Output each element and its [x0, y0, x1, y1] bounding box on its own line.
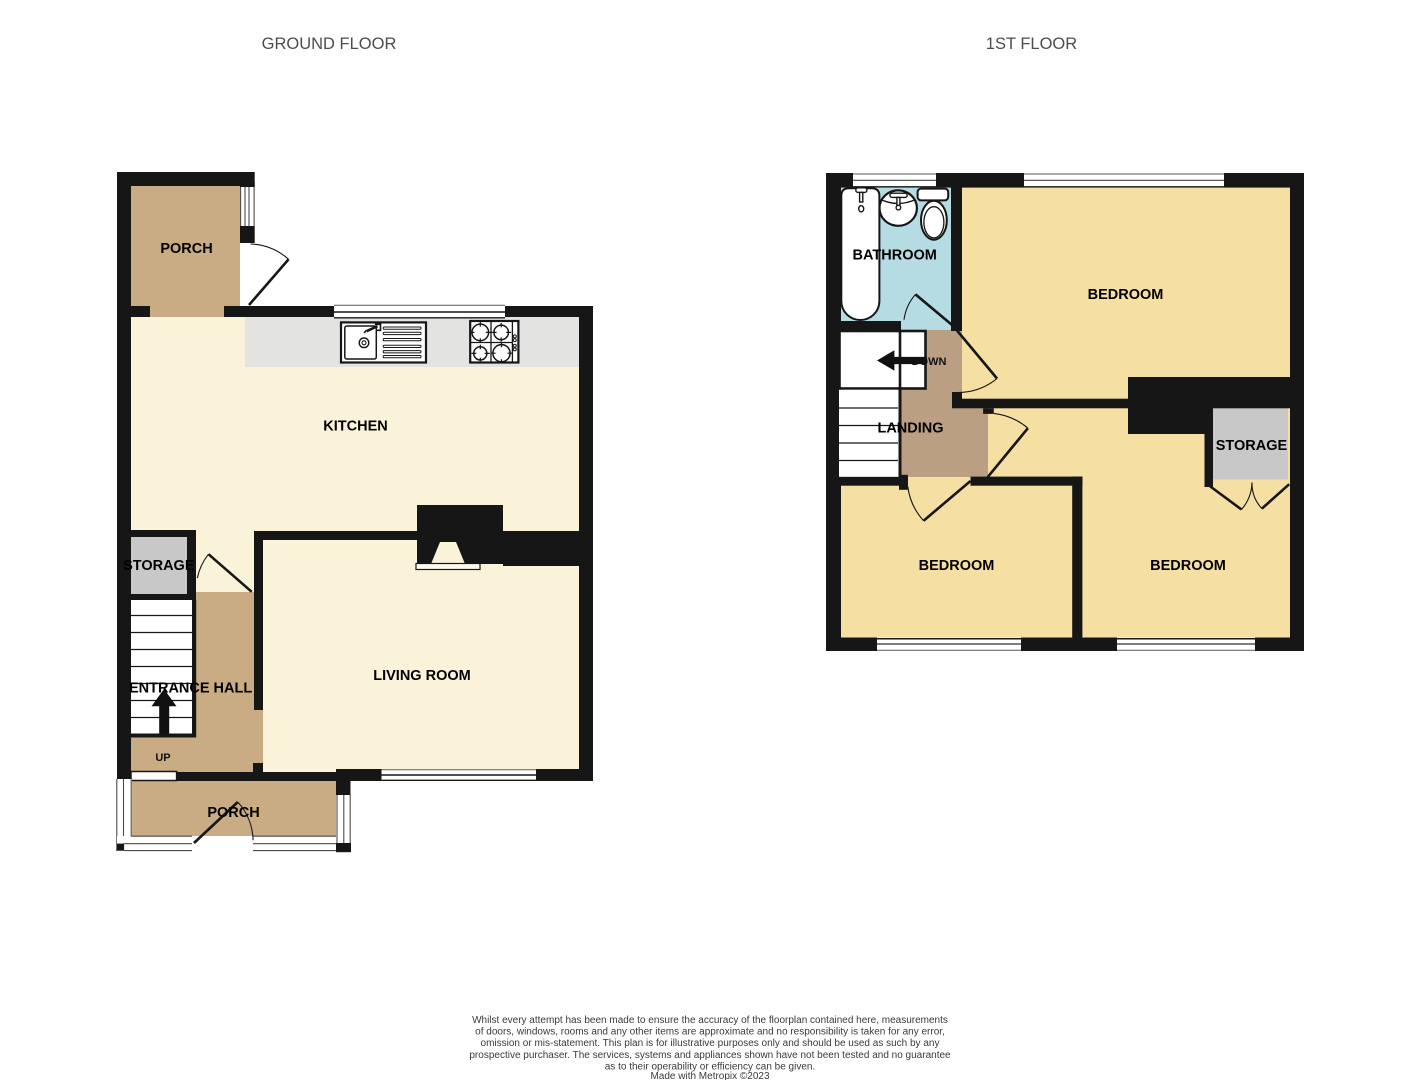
svg-text:LANDING: LANDING: [877, 421, 943, 437]
svg-text:PORCH: PORCH: [160, 241, 212, 257]
svg-text:of doors, windows, rooms and a: of doors, windows, rooms and any other i…: [475, 1027, 945, 1038]
svg-text:prospective purchaser. The ser: prospective purchaser. The services, sys…: [469, 1050, 951, 1061]
svg-text:BATHROOM: BATHROOM: [853, 248, 937, 264]
svg-text:LIVING ROOM: LIVING ROOM: [373, 668, 470, 684]
svg-text:UP: UP: [155, 752, 170, 764]
svg-text:DOWN: DOWN: [912, 356, 947, 368]
svg-text:BEDROOM: BEDROOM: [1088, 287, 1164, 303]
svg-text:BEDROOM: BEDROOM: [1150, 558, 1226, 574]
svg-text:Made with Metropix ©2023: Made with Metropix ©2023: [650, 1071, 770, 1080]
svg-text:Whilst every attempt has been: Whilst every attempt has been made to en…: [472, 1015, 948, 1026]
svg-text:ENTRANCE HALL: ENTRANCE HALL: [129, 681, 252, 697]
svg-text:1ST FLOOR: 1ST FLOOR: [986, 35, 1077, 53]
svg-text:STORAGE: STORAGE: [1216, 438, 1288, 454]
svg-text:STORAGE: STORAGE: [123, 558, 195, 574]
svg-text:omission or mis-statement. Thi: omission or mis-statement. This plan is …: [481, 1038, 940, 1049]
svg-text:PORCH: PORCH: [207, 805, 259, 821]
svg-text:BEDROOM: BEDROOM: [919, 558, 995, 574]
svg-text:KITCHEN: KITCHEN: [323, 419, 387, 435]
svg-text:GROUND FLOOR: GROUND FLOOR: [262, 35, 397, 53]
